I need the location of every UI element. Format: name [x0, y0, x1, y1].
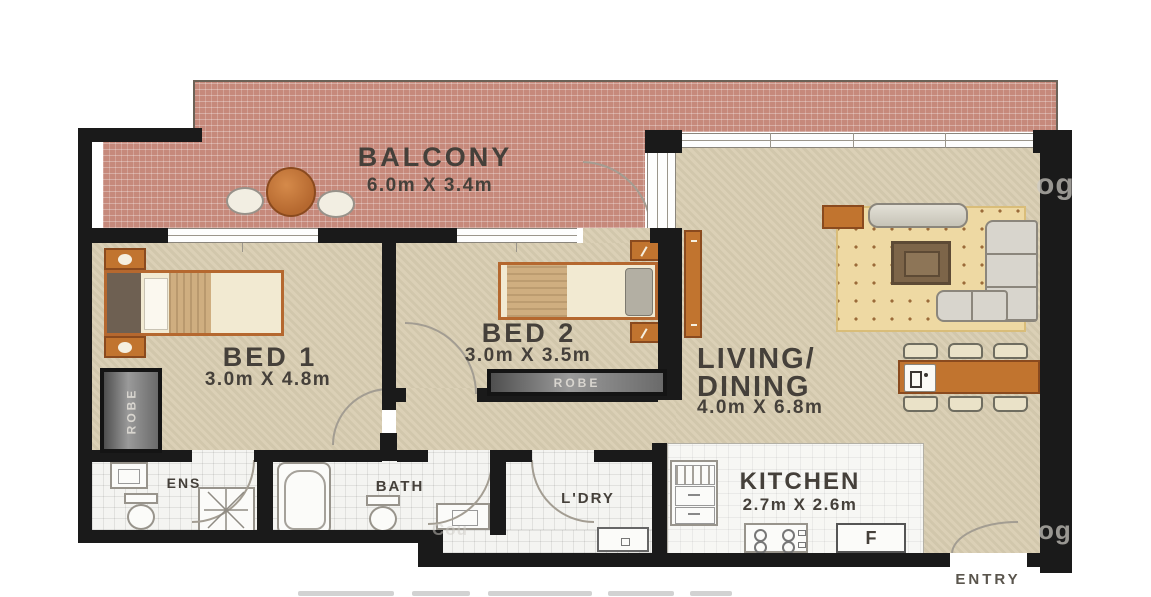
wall-wet-top-b: [254, 450, 382, 462]
watermark-fragment: og: [1036, 168, 1075, 202]
wall-left: [78, 128, 92, 543]
kitchen-label: KITCHEN: [740, 470, 861, 494]
living-window-mullion: [853, 133, 854, 148]
bed1-label: BED 1: [223, 344, 318, 371]
wall-bed1-bed2: [382, 228, 396, 410]
wall-living-corner: [645, 130, 682, 153]
wall-balcony-bed1-a: [92, 228, 168, 243]
entry-opening: [950, 553, 1027, 573]
wall-bottom-c: [1027, 553, 1072, 567]
balcony-dims: 6.0m X 3.4m: [367, 176, 493, 195]
wall-bed1-door-nub: [380, 433, 397, 461]
living-dims: 4.0m X 6.8m: [697, 398, 823, 417]
living-window-line: [682, 140, 1033, 141]
bath-label: BATH: [376, 479, 425, 494]
living-window-mullion: [770, 133, 771, 148]
wall-ens-bath: [257, 450, 273, 542]
watermark-fragment: Cou: [432, 520, 468, 540]
bed1-window-line: [168, 235, 318, 236]
door-swing-arcs: [0, 0, 1151, 597]
bed2-robe-wardrobe: ROBE: [487, 369, 667, 396]
balcony-label: BALCONY: [358, 144, 513, 171]
bed1-robe-wardrobe: ROBE: [100, 368, 162, 453]
bed1-dims: 3.0m X 4.8m: [205, 370, 331, 389]
bed2-dims: 3.0m X 3.5m: [465, 346, 591, 365]
wall-topleft-stub: [92, 128, 202, 142]
bed2-window-line: [457, 235, 577, 236]
wall-bed2-bottom-a: [390, 388, 406, 402]
floor-plan: ROBE ROBE: [0, 0, 1151, 597]
bed2-label: BED 2: [482, 320, 577, 347]
wall-ldry-kitchen: [652, 443, 667, 553]
wall-bath-ldry: [490, 450, 506, 535]
bed1-robe-label: ROBE: [124, 387, 138, 434]
living-label-line1: LIVING/: [697, 345, 816, 374]
balcony-living-door: [647, 153, 676, 228]
wall-bottom-b: [440, 553, 950, 567]
window-tick: [242, 243, 243, 252]
kitchen-dims: 2.7m X 2.6m: [743, 496, 858, 513]
bed2-robe-label: ROBE: [554, 376, 601, 390]
watermark-fragment: og: [1038, 515, 1072, 546]
wall-wet-top-c: [397, 450, 428, 462]
living-window-mullion: [945, 133, 946, 148]
wall-bottom-a: [78, 530, 430, 543]
ldry-label: L'DRY: [561, 491, 615, 506]
shower-symbol: [204, 489, 248, 531]
entry-label: ENTRY: [955, 572, 1020, 587]
window-tick: [516, 243, 517, 252]
ens-label: ENS: [167, 476, 202, 490]
